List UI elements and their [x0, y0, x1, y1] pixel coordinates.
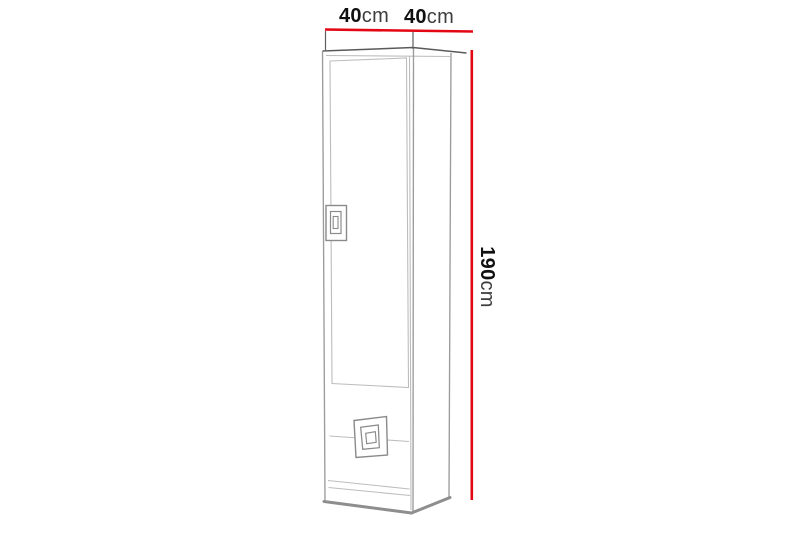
- dimension-diagram: 40cm 40cm 190cm: [0, 0, 800, 533]
- bottom-front-edge: [324, 502, 412, 514]
- width-dimension-label: 40cm: [339, 6, 389, 26]
- top-inner-edge: [326, 56, 452, 57]
- drawer-handle: [354, 417, 388, 458]
- width-value: 40: [339, 5, 362, 27]
- cabinet-body: [323, 48, 467, 514]
- depth-dimension-label: 40cm: [404, 7, 454, 27]
- width-unit: cm: [362, 5, 389, 27]
- top-dimension-line: [325, 30, 473, 32]
- front-right-edge-inner: [410, 56, 412, 510]
- depth-value: 40: [404, 6, 427, 28]
- bottom-side-edge: [412, 498, 451, 514]
- depth-unit: cm: [427, 6, 454, 28]
- drawer-divider-bottom-a: [328, 481, 410, 490]
- height-dimension-label: 190cm: [477, 246, 497, 308]
- top-outer-edge: [323, 48, 467, 54]
- height-value: 190: [476, 246, 498, 280]
- cabinet-drawing: [0, 0, 800, 533]
- drawer-divider-bottom-b: [329, 488, 411, 496]
- height-unit: cm: [476, 281, 498, 308]
- door-handle: [326, 206, 347, 241]
- front-left-edge: [323, 51, 326, 502]
- front-right-edge-outer: [413, 48, 414, 512]
- side-right-edge: [449, 53, 451, 497]
